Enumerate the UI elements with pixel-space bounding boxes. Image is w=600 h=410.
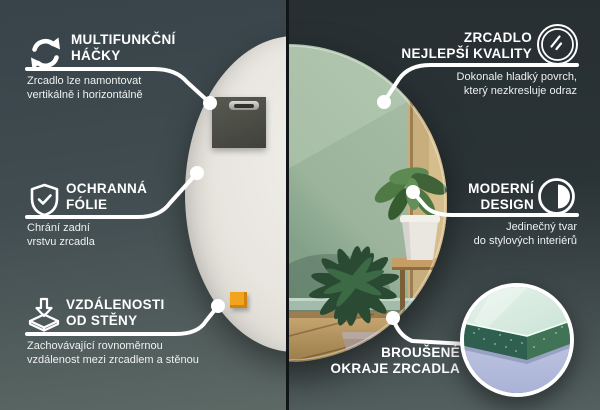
title-line: MULTIFUNKČNÍ <box>71 32 176 48</box>
title-line: OCHRANNÁ <box>66 181 147 197</box>
desc-line: který nezkresluje odraz <box>457 85 577 99</box>
callout-design-desc: Jedinečný tvar do stylových interiérů <box>474 221 577 248</box>
mirror-infographic: MULTIFUNKČNÍ HÁČKY Zrcadlo lze namontova… <box>0 0 600 410</box>
title-line: FÓLIE <box>66 197 147 213</box>
title-line: NEJLEPŠÍ KVALITY <box>401 46 532 62</box>
wall-distance-icon <box>28 297 60 338</box>
mirror-front-disc <box>287 44 447 362</box>
stool-leg <box>434 270 439 310</box>
mirror-shine-icon <box>536 23 579 71</box>
contrast-circle-icon <box>537 177 576 221</box>
desc-line: Zrcadlo lze namontovat <box>27 75 143 89</box>
title-line: ZRCADLO <box>401 30 532 46</box>
split-divider-line <box>286 0 289 410</box>
keyhole-hanger <box>229 101 259 110</box>
glass-edge-detail-photo <box>460 283 574 397</box>
reflection-scene <box>287 44 447 362</box>
desc-line: Dokonale hladký povrch, <box>457 71 577 85</box>
callout-design-title: MODERNÍ DESIGN <box>468 181 534 213</box>
callout-distance-title: VZDÁLENOSTI OD STĚNY <box>66 297 165 329</box>
orange-wall-spacer <box>230 292 247 308</box>
pot-rim <box>400 215 440 223</box>
shield-check-icon <box>29 183 60 222</box>
callout-hooks-desc: Zrcadlo lze namontovat vertikálně i hori… <box>27 75 143 102</box>
callout-foil-title: OCHRANNÁ FÓLIE <box>66 181 147 213</box>
title-line: DESIGN <box>468 197 534 213</box>
callout-hooks-title: MULTIFUNKČNÍ HÁČKY <box>71 32 176 64</box>
callout-quality-desc: Dokonale hladký povrch, který nezkresluj… <box>457 71 577 98</box>
hanger-slot <box>234 104 254 108</box>
desc-line: do stylových interiérů <box>474 235 577 249</box>
title-line: HÁČKY <box>71 48 176 64</box>
desc-line: Jedinečný tvar <box>474 221 577 235</box>
callout-distance-desc: Zachovávající rovnoměrnou vzdálenost mez… <box>27 340 199 367</box>
callout-quality-title: ZRCADLO NEJLEPŠÍ KVALITY <box>401 30 532 62</box>
title-line: MODERNÍ <box>468 181 534 197</box>
title-line: VZDÁLENOSTI <box>66 297 165 313</box>
desc-line: vertikálně i horizontálně <box>27 89 143 103</box>
rotate-arrows-icon <box>27 36 64 76</box>
title-line: OKRAJE ZRCADLA <box>331 361 460 377</box>
felt-mounting-pad <box>212 97 266 148</box>
title-line: BROUŠENÉ <box>331 345 460 361</box>
title-line: OD STĚNY <box>66 313 165 329</box>
stool-leg <box>400 270 405 310</box>
glass-edge-scene <box>464 287 570 393</box>
stool-edge <box>392 267 447 270</box>
desc-line: Chrání zadní <box>27 222 95 236</box>
desc-line: vzdálenost mezi zrcadlem a stěnou <box>27 354 199 368</box>
desc-line: Zachovávající rovnoměrnou <box>27 340 199 354</box>
callout-foil-desc: Chrání zadní vrstvu zrcadla <box>27 222 95 249</box>
callout-edges-title: BROUŠENÉ OKRAJE ZRCADLA <box>331 345 460 377</box>
desc-line: vrstvu zrcadla <box>27 236 95 250</box>
